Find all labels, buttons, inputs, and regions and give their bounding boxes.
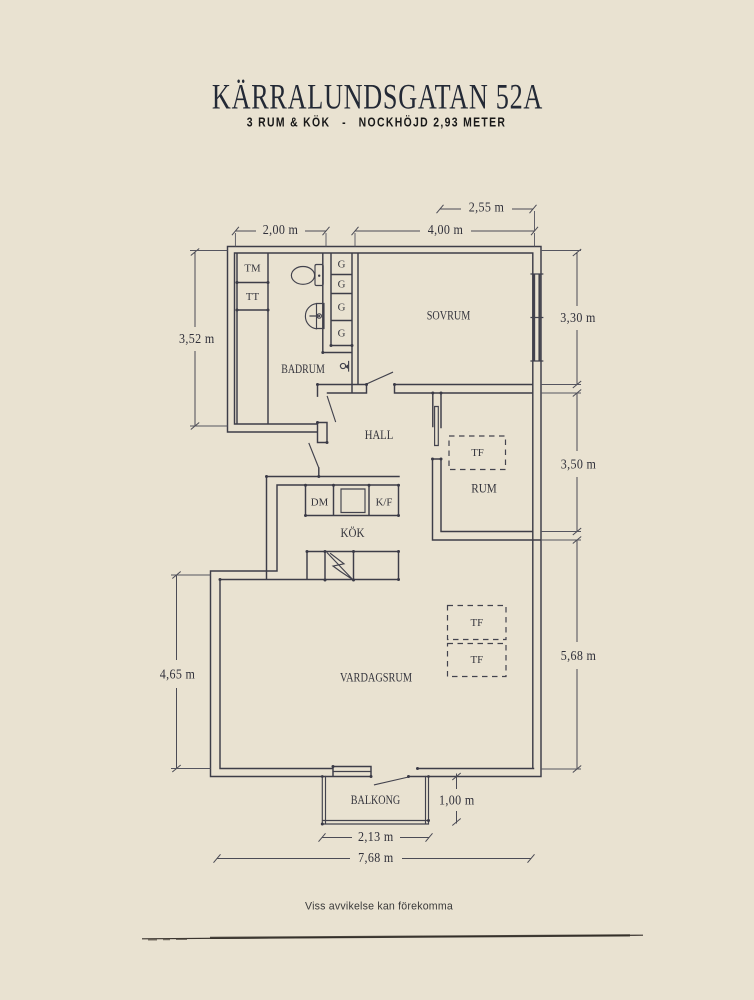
svg-text:2,55 m: 2,55 m [469, 201, 505, 216]
svg-text:TM: TM [244, 263, 261, 275]
svg-text:3,30 m: 3,30 m [560, 311, 596, 326]
svg-text:TT: TT [246, 291, 260, 303]
svg-text:G: G [338, 279, 346, 291]
svg-text:RUM: RUM [471, 481, 497, 495]
svg-text:4,00 m: 4,00 m [428, 223, 464, 238]
svg-text:G: G [338, 258, 346, 270]
svg-text:2,00 m: 2,00 m [263, 223, 299, 238]
svg-text:VARDAGSRUM: VARDAGSRUM [340, 670, 412, 684]
svg-text:2,13 m: 2,13 m [358, 830, 394, 845]
svg-text:KÄRRALUNDSGATAN 52A: KÄRRALUNDSGATAN 52A [212, 76, 543, 116]
svg-text:4,65 m: 4,65 m [160, 668, 196, 683]
svg-text:5,68 m: 5,68 m [561, 649, 597, 664]
svg-text:HALL: HALL [365, 428, 394, 442]
svg-text:TF: TF [470, 654, 483, 666]
svg-text:DM: DM [311, 497, 329, 509]
svg-text:3 RUM & KÖK - NOCKHÖJD 2,93 ME: 3 RUM & KÖK - NOCKHÖJD 2,93 METER [247, 116, 507, 130]
svg-text:TF: TF [471, 447, 484, 459]
svg-text:G: G [338, 327, 346, 339]
svg-text:TF: TF [470, 617, 483, 629]
svg-text:BADRUM: BADRUM [281, 362, 325, 376]
svg-text:3,52 m: 3,52 m [179, 332, 215, 347]
svg-text:G: G [338, 301, 346, 313]
svg-text:7,68 m: 7,68 m [358, 851, 394, 866]
svg-text:3,50 m: 3,50 m [561, 458, 597, 473]
svg-text:K/F: K/F [376, 497, 393, 509]
svg-text:1,00 m: 1,00 m [439, 794, 475, 809]
svg-text:Viss avvikelse kan förekomma: Viss avvikelse kan förekomma [305, 901, 453, 913]
svg-text:KÖK: KÖK [341, 526, 365, 540]
svg-text:BALKONG: BALKONG [351, 793, 401, 807]
svg-text:SOVRUM: SOVRUM [427, 309, 471, 323]
